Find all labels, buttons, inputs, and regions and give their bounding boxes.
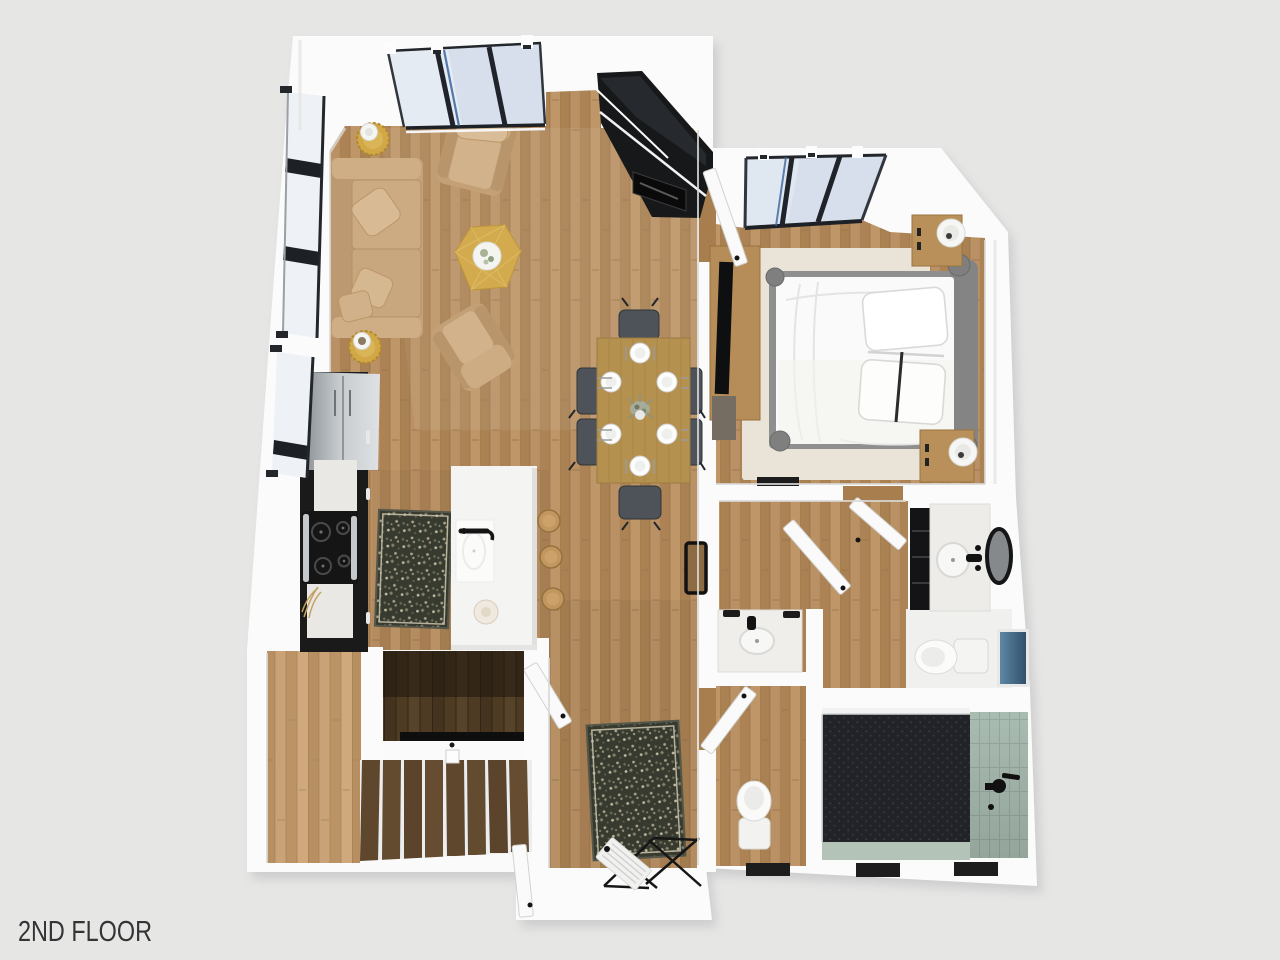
svg-text:2ND FLOOR: 2ND FLOOR <box>18 916 152 948</box>
